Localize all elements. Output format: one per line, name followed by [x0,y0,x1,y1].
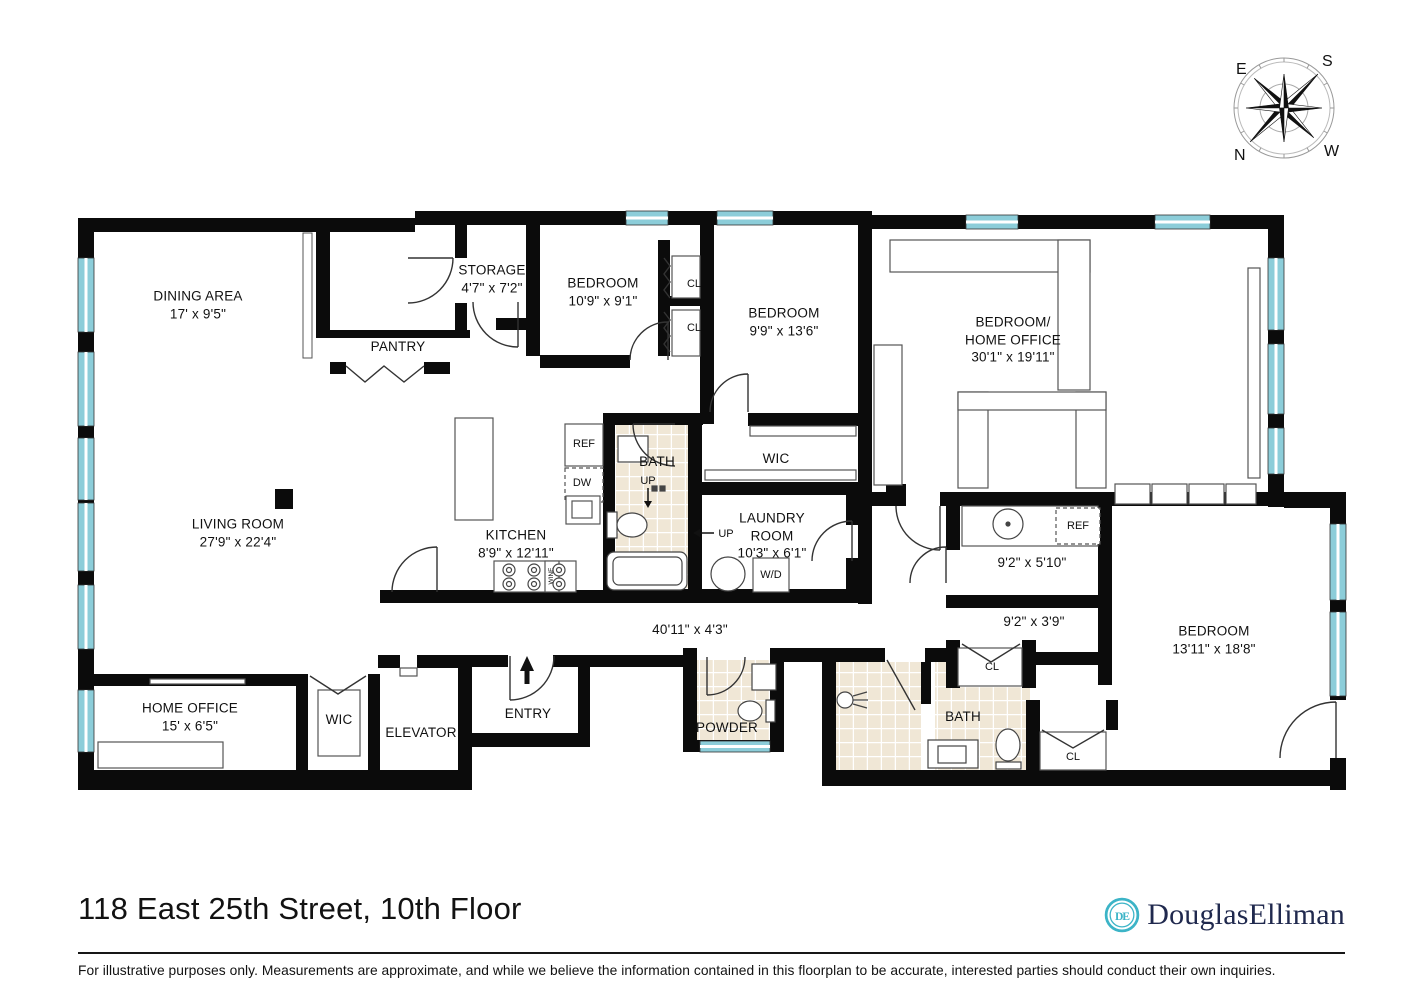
compass-s: S [1322,53,1333,70]
dining-partition [303,233,312,358]
hallway-dims-label: 40'11" x 4'3" [652,621,728,639]
up-label-laundry: UP [718,527,733,541]
brand-logo: DE DouglasElliman [1104,897,1345,933]
footer-divider [78,952,1345,954]
svg-text:DE: DE [1115,910,1130,923]
room-label-dining: DINING AREA17' x 9'5" [153,287,242,322]
room-label-bath-upper: BATH [639,453,675,471]
room-label-wic-lower: WIC [326,711,353,729]
toilet2-icon [996,729,1020,761]
powder-toilet-icon [738,701,762,721]
compass-w: W [1324,143,1340,160]
room-label-entry: ENTRY [505,705,552,723]
room-label-living: LIVING ROOM27'9" x 22'4" [192,515,284,550]
disclaimer-text: For illustrative purposes only. Measurem… [78,963,1345,978]
brand-monogram-icon: DE [1104,897,1140,933]
room-label-pantry: PANTRY [371,338,426,356]
room-label-bath-lower: BATH [945,708,981,726]
compass-rose: E S N W [1222,38,1352,178]
room-label-bedroom-home-office: BEDROOM/ HOME OFFICE 30'1" x 19'11" [965,314,1061,367]
closet-label-c: CL [985,660,999,674]
powder-sink-icon [752,664,776,690]
shower-icon [837,692,853,708]
room-label-powder: POWDER [696,719,758,737]
room-label-wic-upper: WIC [763,450,790,468]
floorplan-drawing [0,0,1415,1000]
compass-n: N [1234,147,1246,164]
wd-label: W/D [760,568,781,582]
room-label-bedroom1: BEDROOM10'9" x 9'1" [567,274,638,309]
toilet-icon [617,513,647,537]
compass-e: E [1236,61,1247,78]
closet-label-d: CL [1066,750,1080,764]
room-label-bedroom3: BEDROOM13'11" x 18'8" [1172,622,1255,657]
room-label-laundry: LAUNDRYROOM10'3" x 6'1" [738,510,807,563]
dw-label: DW [573,476,591,490]
room-label-home-office: HOME OFFICE15' x 6'5" [142,699,238,734]
room-label-storage: STORAGE4'7" x 7'2" [458,261,525,296]
room-label-kitchen: KITCHEN8'9" x 12'11" [478,526,554,561]
closet-label-b: CL [687,321,701,335]
wine-label: WINE [548,568,556,585]
closet-passage-dims-label: 9'2" x 3'9" [1003,613,1064,631]
page-title: 118 East 25th Street, 10th Floor [78,891,522,927]
entry-arrow-icon [520,656,534,684]
ref-label-kitchen: REF [573,437,595,451]
closet-label-a: CL [687,277,701,291]
room-label-wet-bar: 9'2" x 5'10" [998,554,1067,572]
room-label-bedroom2: BEDROOM9'9" x 13'6" [748,304,819,339]
room-label-elevator: ELEVATOR [385,724,456,742]
ref-label-wet-bar: REF [1067,519,1089,533]
up-label-bath: UP [640,474,655,488]
brand-name: DouglasElliman [1147,898,1345,932]
floorplan-page: DINING AREA17' x 9'5" STORAGE4'7" x 7'2"… [0,0,1415,1000]
